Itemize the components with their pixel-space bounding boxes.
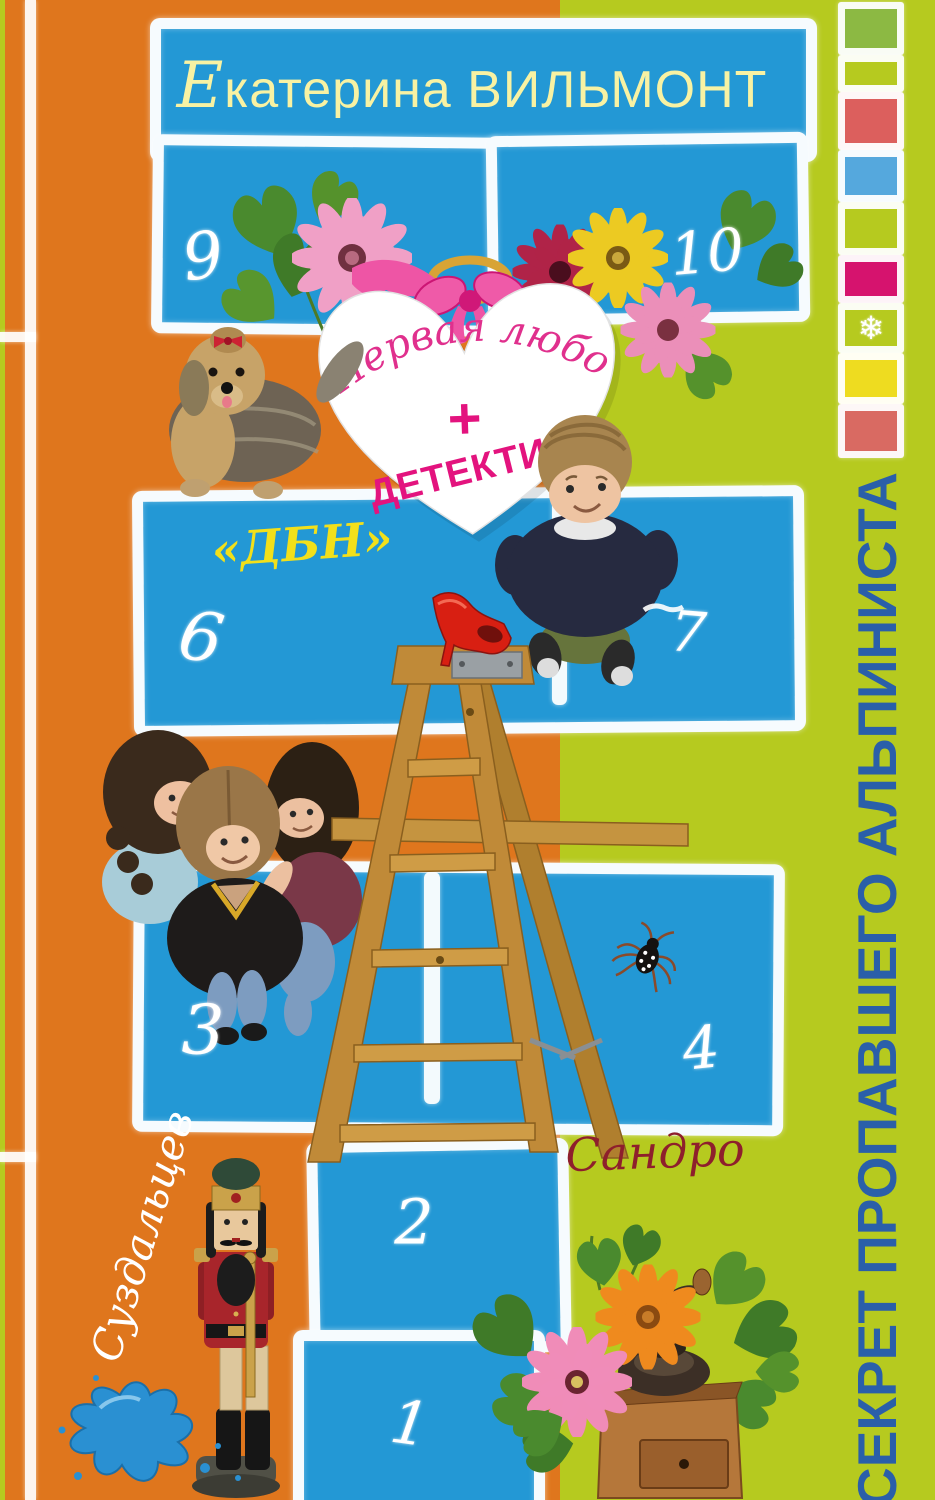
heart-plus-text: + xyxy=(447,386,483,452)
hopscotch-number-3: 3 xyxy=(181,992,224,1071)
chalk-divider-3-4 xyxy=(424,872,440,1104)
hopscotch-square-2 xyxy=(306,1138,572,1357)
hopscotch-number-4: 4 xyxy=(679,1012,723,1083)
chalk-divider-6-7 xyxy=(552,495,567,705)
chalk-vertical-line xyxy=(25,0,36,1500)
swatch-snowflake-cell: ❄ xyxy=(838,303,904,353)
chalk-tick-upper xyxy=(0,332,36,342)
hopscotch-row-3-4 xyxy=(132,860,785,1137)
swatch-magenta xyxy=(838,255,904,303)
swatch-blue xyxy=(838,150,904,202)
author-name: Екатерина ВИЛЬМОНТ xyxy=(177,49,768,123)
hopscotch-number-7: 7 xyxy=(667,599,708,667)
author-rest: катерина ВИЛЬМОНТ xyxy=(224,61,767,119)
swatch-coral xyxy=(838,404,904,458)
swatch-yellow xyxy=(838,353,904,404)
hopscotch-number-2: 2 xyxy=(394,1186,433,1259)
snowflake-icon: ❄ xyxy=(858,312,885,344)
hopscotch-square-10 xyxy=(486,132,811,326)
swatch-empty-1 xyxy=(838,55,904,92)
book-title-vertical: СЕКРЕТ ПРОПАВШЕГО АЛЬПИНИСТА xyxy=(845,477,909,1500)
swatch-green xyxy=(838,2,904,55)
corner-color-strip: ❄ xyxy=(838,2,904,458)
paint-splat xyxy=(59,1375,242,1481)
nutcracker-illustration xyxy=(192,1158,280,1498)
left-lime-edge xyxy=(0,0,5,1500)
swatch-empty-2 xyxy=(838,202,904,255)
inscription-suzdaltsev: Суздальцев xyxy=(81,1105,204,1367)
inscription-sandro: Сандро xyxy=(565,1122,746,1182)
book-cover: ❄ xyxy=(0,0,935,1500)
chalk-tick-lower xyxy=(0,1152,36,1162)
dog-illustration xyxy=(169,327,372,499)
author-initial: Е xyxy=(177,49,225,123)
dog-bow xyxy=(214,336,242,348)
swatch-red xyxy=(838,92,904,150)
hopscotch-number-10: 10 xyxy=(667,215,746,289)
